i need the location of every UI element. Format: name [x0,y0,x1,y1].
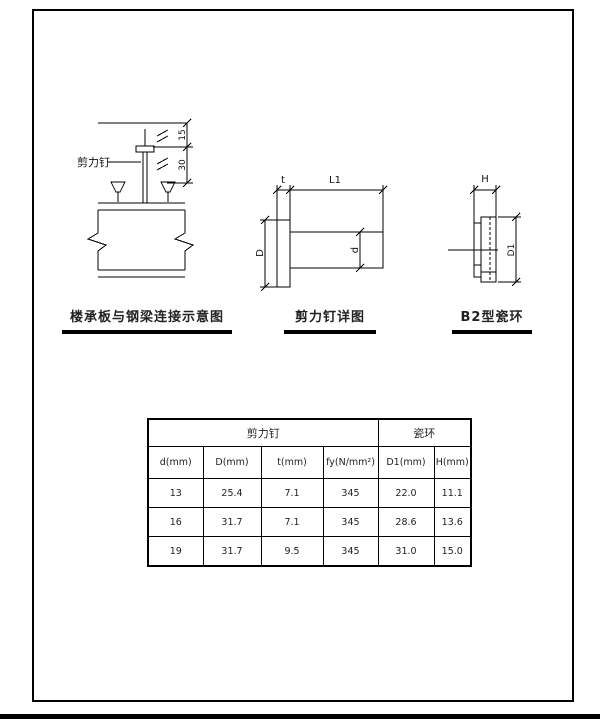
stud-label: 剪力钉 [77,155,110,169]
col-header-H: H(mm) [434,447,471,479]
dim-t-label: t [281,175,285,186]
stud-head-shape [277,220,290,287]
cell: 9.5 [261,537,323,567]
table-row: 19 31.7 9.5 345 31.0 15.0 [148,537,471,567]
cell: 7.1 [261,508,323,537]
beam-web-break-left [88,210,106,270]
stud-spec-table: 剪力钉 瓷环 d(mm) D(mm) t(mm) fy(N/mm²) D1(mm… [147,418,472,567]
group-header-ring: 瓷环 [378,419,471,447]
dim-upper-label: 15 [178,129,188,140]
dimension-line-vertical [153,119,193,187]
deck-connection-title: 楼承板与钢梁连接示意图 [62,306,232,334]
beam-web-break-right [175,210,193,270]
cell: 28.6 [378,508,434,537]
dim-d-label: d [350,247,361,253]
dim-D1-label: D1 [507,244,517,257]
col-header-t: t(mm) [261,447,323,479]
bottom-edge-bar [0,714,600,719]
cell: 16 [148,508,203,537]
col-header-fy: fy(N/mm²) [323,447,378,479]
stud-shank-shape [290,232,383,268]
col-header-d: d(mm) [148,447,203,479]
stud-detail-title: 剪力钉详图 [284,306,376,334]
cell: 345 [323,537,378,567]
deck-rib-left [111,182,125,202]
dim-H-label: H [481,174,489,185]
dim-lower-label: 30 [178,159,188,171]
shear-stud-shape [136,129,154,203]
stud-detail-diagram: t L1 D d [250,155,410,300]
dim-D-label: D [255,249,266,257]
ferrule-hatch [474,265,496,282]
cell: 19 [148,537,203,567]
cell: 31.7 [203,537,261,567]
cell: 7.1 [261,479,323,508]
cell: 13 [148,479,203,508]
geq-mark-upper [157,130,168,142]
geq-mark-lower [157,158,168,170]
group-header-stud: 剪力钉 [148,419,378,447]
beam-top-flange [98,203,185,210]
cell: 31.7 [203,508,261,537]
ceramic-ring-title: B2型瓷环 [452,306,532,334]
cell: 31.0 [378,537,434,567]
table-group-header-row: 剪力钉 瓷环 [148,419,471,447]
cell: 13.6 [434,508,471,537]
deck-connection-diagram: 15 30 剪力钉 [55,105,255,305]
cell: 345 [323,479,378,508]
table-column-header-row: d(mm) D(mm) t(mm) fy(N/mm²) D1(mm) H(mm) [148,447,471,479]
col-header-D1: D1(mm) [378,447,434,479]
cell: 25.4 [203,479,261,508]
deck-rib-right [161,182,175,202]
table-row: 13 25.4 7.1 345 22.0 11.1 [148,479,471,508]
beam-bottom-flange [98,270,185,277]
cell: 345 [323,508,378,537]
table-row: 16 31.7 7.1 345 28.6 13.6 [148,508,471,537]
ceramic-ring-diagram: H D1 [440,165,560,305]
cell: 15.0 [434,537,471,567]
dim-L1-label: L1 [329,175,341,186]
cell: 11.1 [434,479,471,508]
col-header-D: D(mm) [203,447,261,479]
cell: 22.0 [378,479,434,508]
